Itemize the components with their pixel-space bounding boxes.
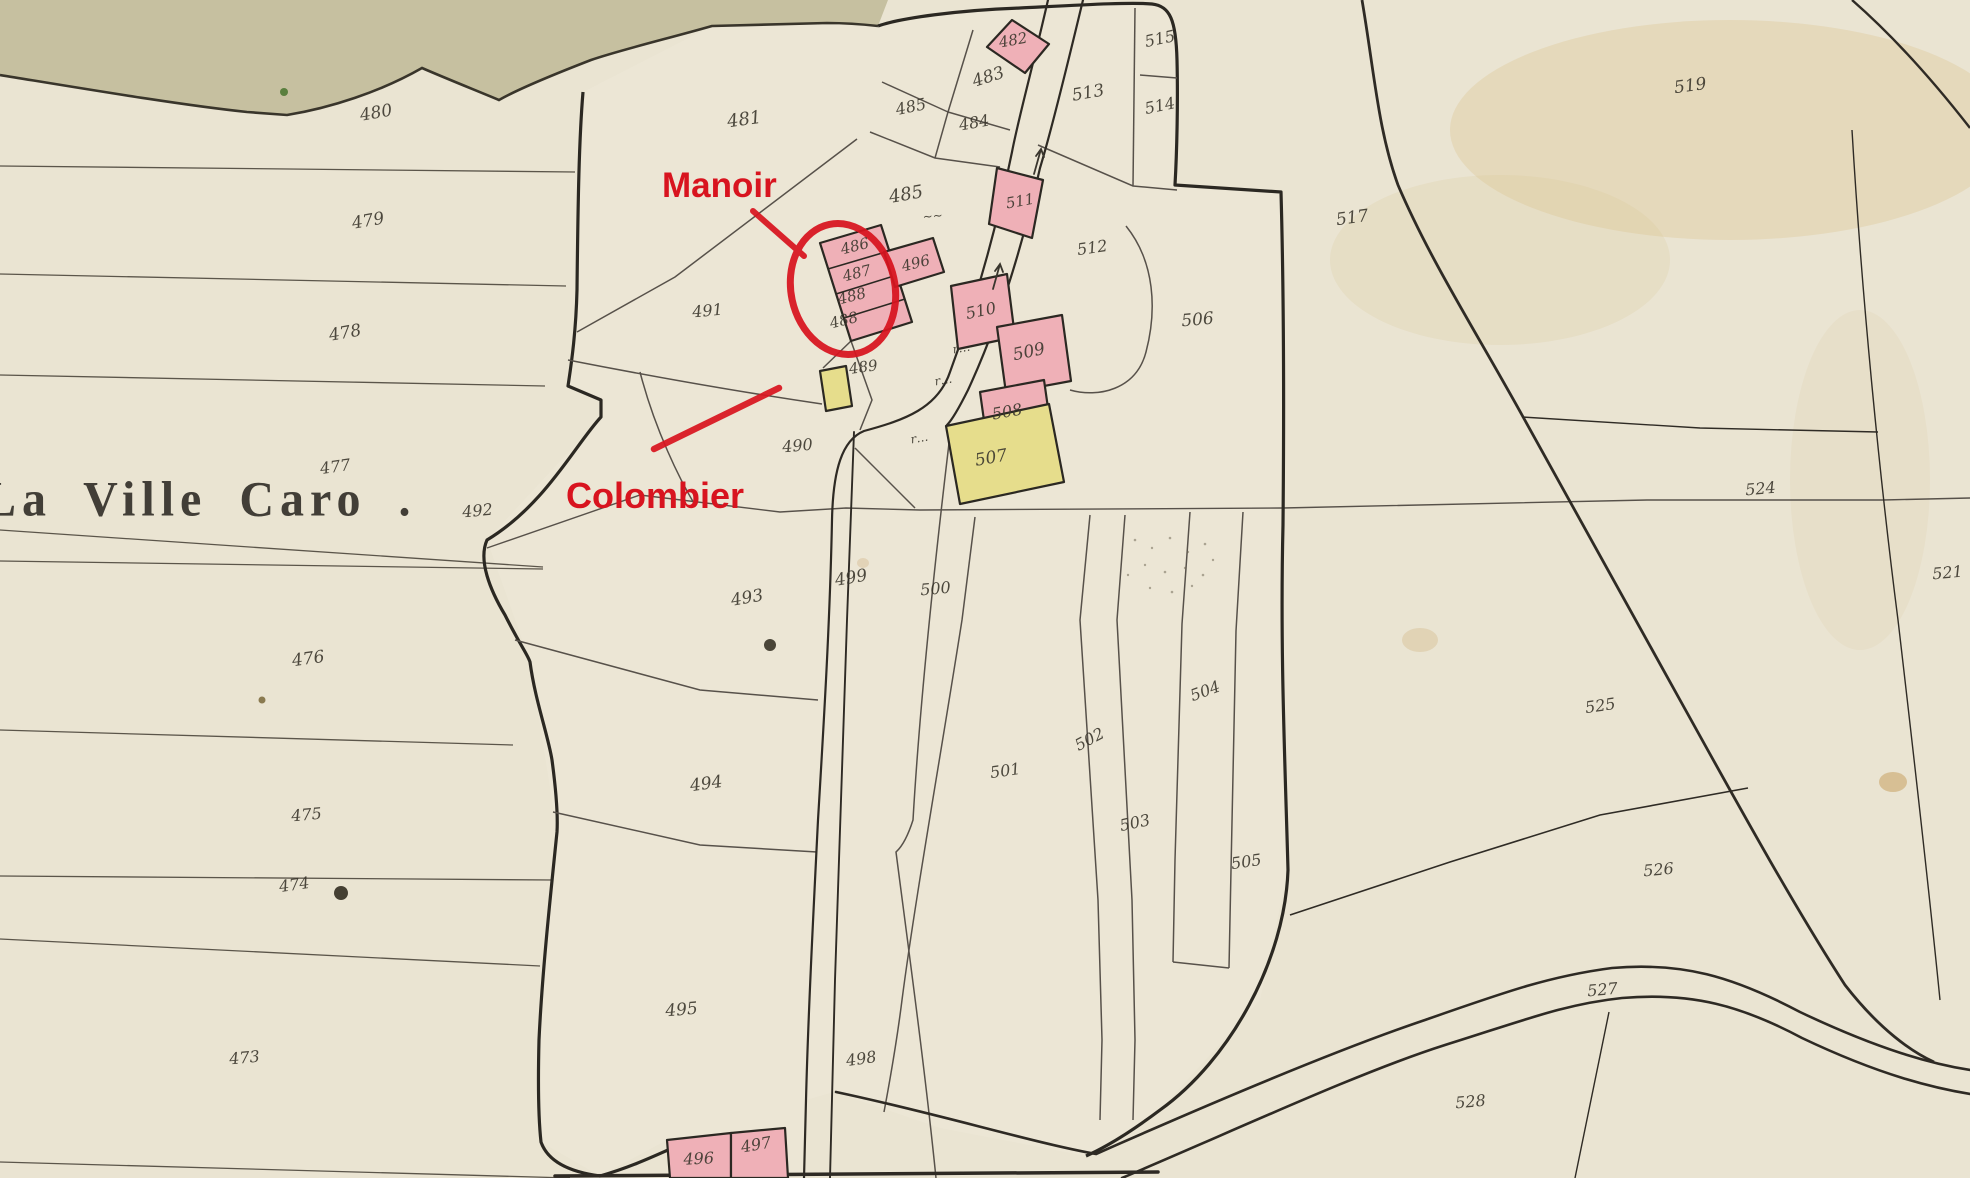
parcel-label-524: 524	[1744, 478, 1776, 500]
parcel-label-492: 492	[460, 500, 493, 522]
parcel-label-521: 521	[1931, 562, 1963, 584]
parcel-label-~~: ~~	[922, 208, 943, 224]
parcel-label-490: 490	[780, 435, 813, 457]
parcel-label-473: 473	[227, 1047, 260, 1069]
parcel-label-475: 475	[289, 804, 322, 826]
parcel-label-526: 526	[1642, 859, 1674, 881]
parcel-label-500: 500	[919, 578, 951, 600]
parcel-label-506: 506	[1181, 309, 1215, 332]
parcel-label-527: 527	[1586, 979, 1619, 1001]
parcel-label-528: 528	[1454, 1091, 1486, 1113]
cadastral-map: 4804794784774764754744734814824834854844…	[0, 0, 1970, 1178]
parcel-label-496: 496	[682, 1148, 714, 1169]
cadastral-map-screenshot: 4804794784774764754744734814824834854844…	[0, 0, 1970, 1178]
parcel-label-491: 491	[690, 300, 723, 322]
parcel-label-495: 495	[664, 999, 699, 1022]
village-area	[487, 4, 1288, 1178]
colombier-building-yellow	[820, 366, 852, 411]
green-speck	[280, 88, 288, 96]
